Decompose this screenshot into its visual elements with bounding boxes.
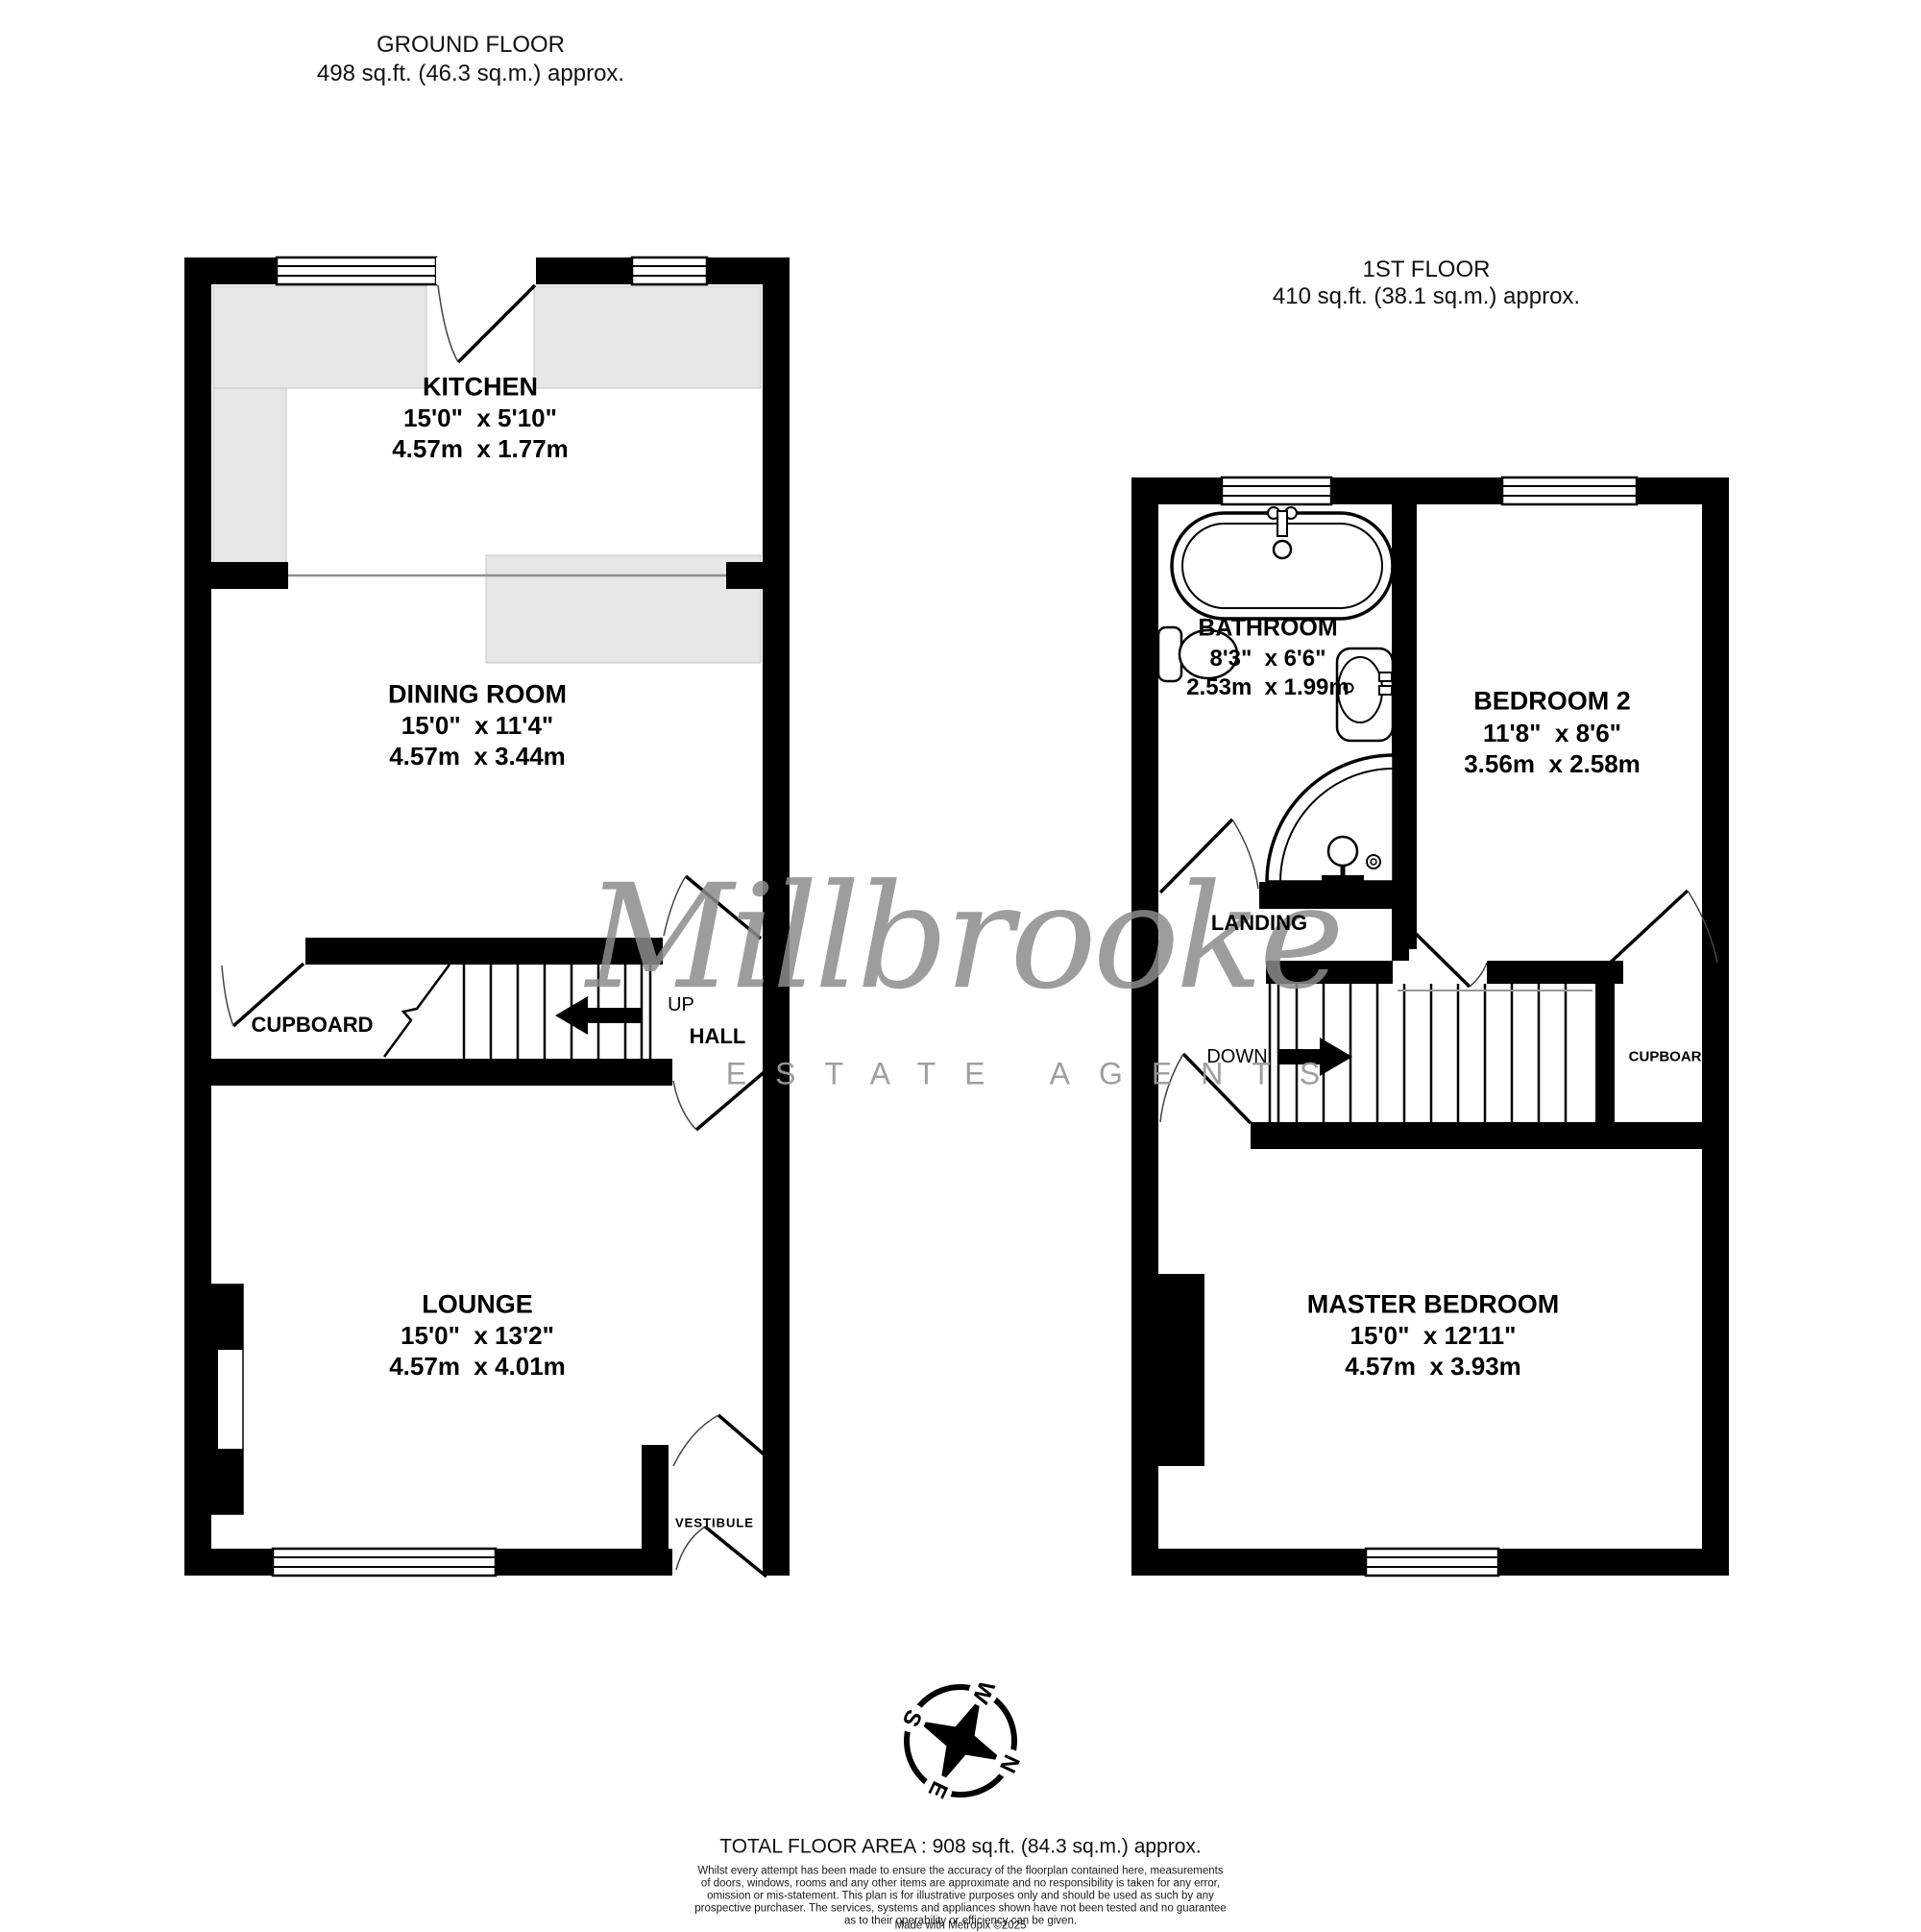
master-bedroom-imperial: 15'0" x 12'11" [1350,1323,1517,1348]
bathtub-icon [1172,507,1393,619]
disclaimer-line: omission or mis-statement. This plan is … [707,1891,1214,1902]
up-label: UP [668,995,694,1015]
hall-label: HALL [690,1026,746,1047]
kitchen-metric: 4.57m x 1.77m [392,436,569,461]
bedroom2-door-hinge [1392,945,1409,961]
lounge-imperial: 15'0" x 13'2" [401,1323,554,1348]
gf-cupboard-label: CUPBOARD [251,1015,373,1036]
first-floor-plan [1131,477,1729,1576]
ff-cupboard-label: CUPBOARD [1629,1050,1713,1064]
lounge-metric: 4.57m x 4.01m [389,1354,566,1379]
kitchen-door-opening [436,257,536,284]
master-bedroom-label: MASTER BEDROOM [1307,1292,1560,1318]
bedroom2-label: BEDROOM 2 [1473,689,1631,715]
master-bedroom-metric: 4.57m x 3.93m [1345,1354,1521,1379]
disclaimer-line: prospective purchaser. The services, sys… [694,1903,1226,1915]
bathroom-label: BATHROOM [1198,617,1337,641]
dining-room-metric: 4.57m x 3.44m [389,744,566,769]
bathroom-window [1222,477,1331,504]
bathroom-imperial: 8'3" x 6'6" [1210,648,1326,671]
gf-stairs-bottom-wall [184,1059,672,1086]
landing-label: LANDING [1211,913,1307,934]
made-with-credit: Made with Metropix ©2025 [895,1921,1027,1932]
vestibule-label: VESTIBULE [675,1517,754,1529]
kitchen-window-left [277,257,436,284]
master-chimney-breast [1158,1274,1204,1466]
disclaimer-line: of doors, windows, rooms and any other i… [701,1878,1220,1890]
kitchen-imperial: 15'0" x 5'10" [403,405,557,430]
disclaimer-line: Whilst every attempt has been made to en… [697,1866,1223,1877]
lounge-window [273,1549,496,1576]
compass-icon: N E S W [870,1651,1052,1832]
watermark-logo: Millbrooke [586,854,1341,1021]
ff-stairs-top-wall-right [1487,961,1623,984]
dining-room-label: DINING ROOM [388,682,567,708]
bedroom2-window [1502,477,1637,504]
vestibule-wall [642,1445,669,1576]
kitchen-window-right [632,257,707,284]
down-label: DOWN [1206,1047,1267,1066]
bedroom2-metric: 3.56m x 2.58m [1464,751,1641,776]
master-door-opening [1158,1122,1251,1149]
kitchen-label: KITCHEN [423,375,538,401]
lounge-label: LOUNGE [422,1292,533,1318]
ground-floor-area: 498 sq.ft. (46.3 sq.m.) approx. [317,62,624,86]
bathroom-bedroom2-wall [1392,504,1417,949]
ff-cupboard-wall [1595,982,1615,1124]
ground-floor-title: GROUND FLOOR [377,34,565,57]
floorplan-canvas: N E S W Millbrooke ESTATE AGENTS GROUND … [0,0,1921,1932]
first-floor-title: 1ST FLOOR [1363,258,1491,281]
bathroom-metric: 2.53m x 1.99m [1186,676,1349,699]
master-window [1366,1549,1498,1576]
first-floor-area: 410 sq.ft. (38.1 sq.m.) approx. [1273,285,1580,308]
bedroom2-imperial: 11'8" x 8'6" [1483,721,1621,746]
total-floor-area: TOTAL FLOOR AREA : 908 sq.ft. (84.3 sq.m… [719,1837,1201,1857]
dining-room-imperial: 15'0" x 11'4" [401,713,553,738]
